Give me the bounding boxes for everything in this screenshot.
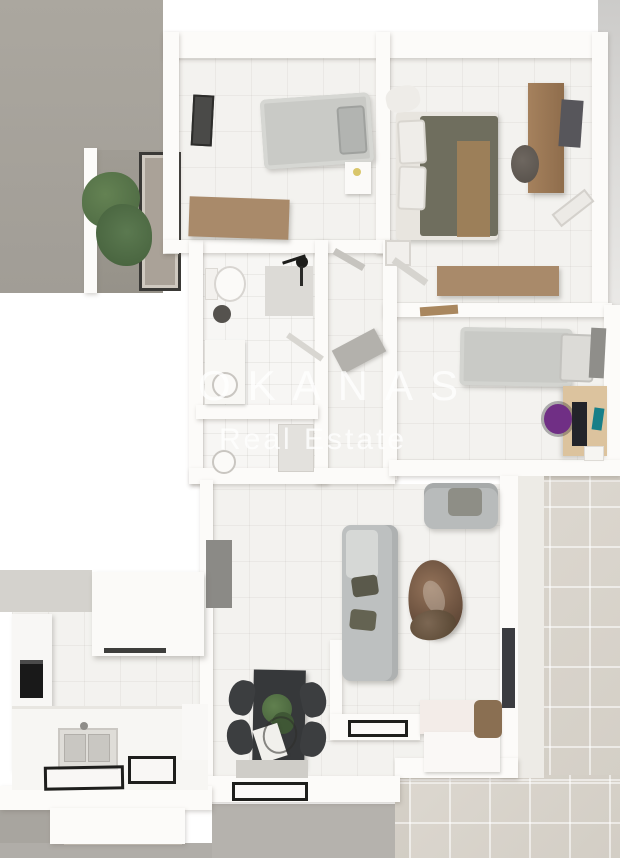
entry-bench-seat (424, 732, 500, 772)
master-tv-panel (558, 99, 583, 147)
bath-sink (212, 372, 238, 398)
bath-bin (213, 305, 231, 323)
kitchen-stove-outline (44, 765, 124, 790)
bed1-nightstand (345, 162, 371, 194)
kitchen-faucet (80, 722, 88, 730)
wall-hall-right (383, 240, 397, 480)
living-tv-sideboard (206, 540, 232, 608)
wall-bed3-bottom (389, 460, 620, 476)
entry-doormat (236, 760, 308, 778)
bed3-desk-chair (544, 404, 572, 434)
toilet-bowl (214, 266, 246, 302)
bed1-tv-frame (191, 94, 215, 146)
master-desk (437, 266, 559, 296)
wall-bed1-bed2 (376, 32, 390, 254)
wall-left-upper (163, 32, 179, 254)
wc-sink (212, 450, 236, 474)
wall-master-bottom (383, 303, 612, 317)
wall-bath-left (189, 240, 203, 484)
terrace-walk-ledge (518, 476, 544, 778)
wall-kitchen-step (50, 808, 185, 844)
backdrop-left-ledge (0, 570, 92, 612)
wall-right-master (592, 32, 608, 308)
bed3-headboard (589, 328, 607, 379)
bed3-single-bed (460, 327, 573, 387)
entry-dark-panel (502, 628, 515, 708)
master-pillow-1 (397, 119, 427, 164)
master-bed-throw (457, 141, 490, 237)
wall-entry-vertical (330, 640, 342, 718)
kitchen-peninsula (182, 704, 208, 760)
bed1-desk (188, 196, 289, 239)
wall-bath-right (315, 240, 328, 484)
entry-door-threshold (232, 782, 308, 801)
bed3-monitor (572, 402, 587, 446)
armchair-cushion (448, 488, 482, 516)
shower-pole (300, 266, 303, 286)
wc-shower (278, 424, 314, 472)
kitchen-oven (20, 660, 43, 698)
shower-panel (265, 266, 313, 316)
sofa-chaise-cushion (346, 530, 378, 578)
terrace-tiles-bottom (395, 775, 620, 858)
kitchen-island (92, 572, 204, 656)
backdrop-below-dining (212, 804, 395, 858)
bed3-drawer (584, 446, 604, 461)
kitchen-island-rail (104, 648, 166, 653)
entry-bench-cushion (474, 700, 502, 738)
bed1-nightstand-item (353, 168, 361, 176)
master-pouf (511, 145, 539, 183)
kitchen-sink-basin-left (64, 734, 86, 762)
wall-bath-wc-split (196, 405, 318, 419)
kitchen-counter-outline (128, 756, 176, 784)
sofa-pillow-1 (351, 574, 380, 597)
kitchen-sink-basin-right (88, 734, 110, 762)
wall-living-right (500, 476, 518, 776)
inner-door-threshold (348, 720, 408, 737)
balcony-plant-lower (96, 204, 152, 266)
floorplan-3d-render: OKANAS Real Estate (0, 0, 620, 858)
master-pillow-2 (397, 166, 427, 211)
sofa-pillow-2 (349, 609, 377, 632)
bed1-pillow (336, 105, 367, 155)
